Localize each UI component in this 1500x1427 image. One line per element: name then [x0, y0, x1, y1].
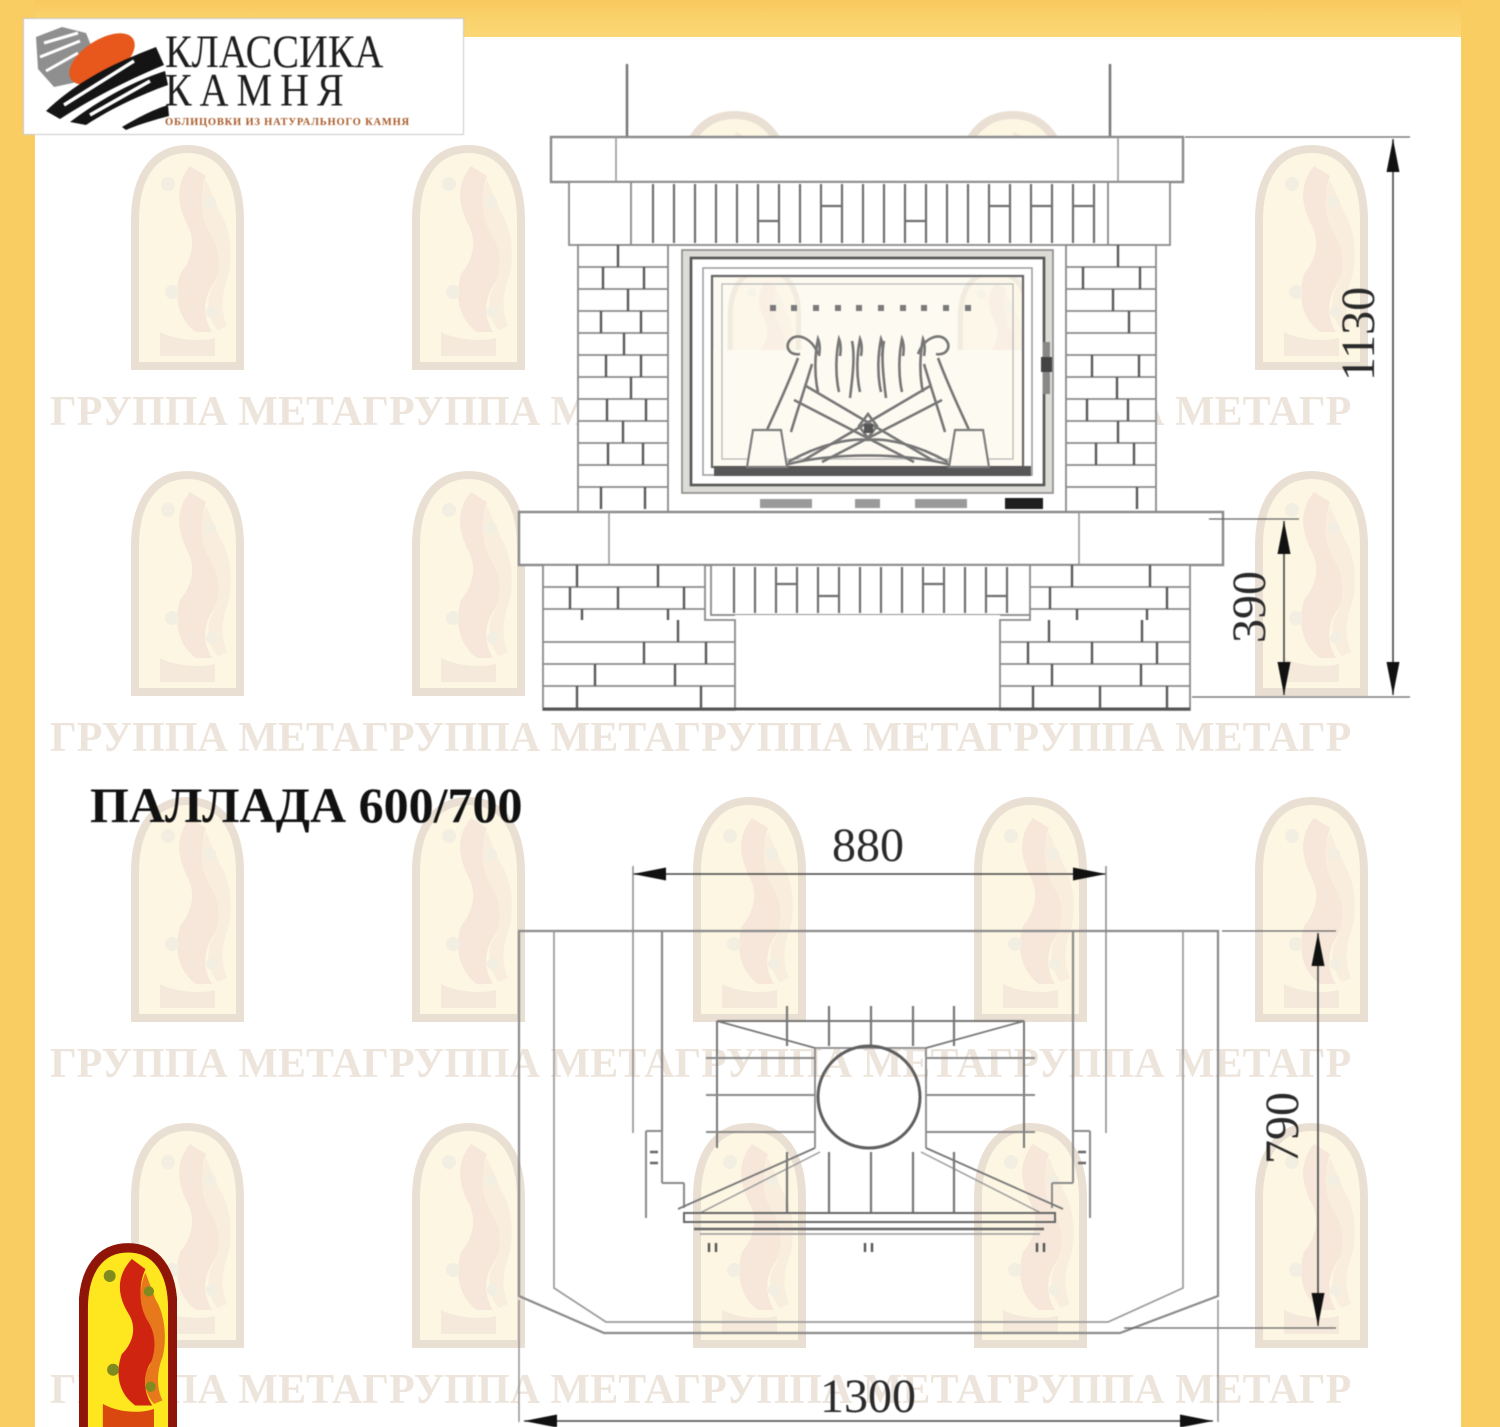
- svg-text:390: 390: [1223, 571, 1276, 643]
- svg-text:880: 880: [832, 819, 904, 872]
- svg-text:1300: 1300: [820, 1370, 916, 1423]
- svg-text:790: 790: [1256, 1092, 1309, 1164]
- svg-text:1130: 1130: [1332, 287, 1385, 381]
